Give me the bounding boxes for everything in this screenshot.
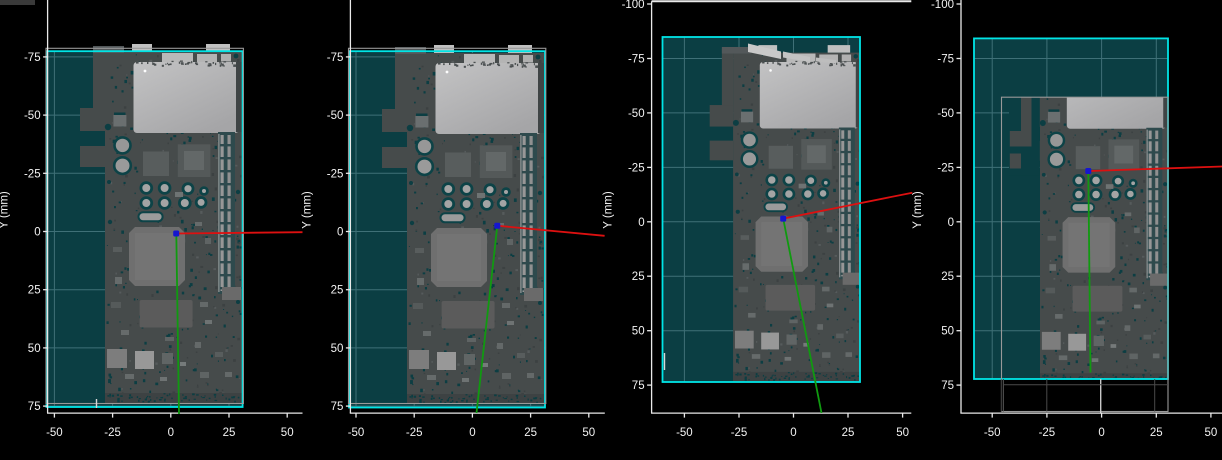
svg-text:Y (mm): Y (mm): [301, 191, 313, 229]
svg-text:0: 0: [638, 217, 644, 229]
svg-text:25: 25: [941, 271, 954, 283]
svg-text:25: 25: [1150, 427, 1163, 439]
svg-text:50: 50: [1205, 427, 1218, 439]
svg-text:-50: -50: [24, 110, 41, 122]
svg-text:-50: -50: [984, 427, 1001, 439]
svg-text:50: 50: [331, 343, 344, 355]
svg-text:-25: -25: [731, 427, 748, 439]
svg-text:-75: -75: [24, 52, 41, 64]
svg-text:25: 25: [524, 427, 537, 439]
svg-text:-75: -75: [628, 54, 645, 66]
svg-text:Y (mm): Y (mm): [912, 191, 924, 229]
svg-text:-75: -75: [937, 54, 954, 66]
svg-text:50: 50: [632, 326, 645, 338]
svg-text:-25: -25: [24, 168, 41, 180]
svg-text:75: 75: [941, 380, 954, 392]
svg-text:25: 25: [28, 285, 41, 297]
svg-text:-75: -75: [327, 52, 344, 64]
svg-text:0: 0: [337, 227, 343, 239]
svg-text:50: 50: [281, 427, 294, 439]
svg-text:-50: -50: [676, 427, 693, 439]
svg-text:25: 25: [331, 285, 344, 297]
svg-text:0: 0: [168, 427, 174, 439]
svg-text:50: 50: [896, 427, 909, 439]
svg-text:-50: -50: [46, 427, 63, 439]
svg-text:-100: -100: [622, 0, 645, 11]
svg-text:-50: -50: [628, 108, 645, 120]
svg-text:0: 0: [790, 427, 796, 439]
svg-text:50: 50: [28, 343, 41, 355]
svg-text:75: 75: [632, 380, 645, 392]
svg-text:75: 75: [28, 401, 41, 413]
svg-text:25: 25: [632, 271, 645, 283]
svg-text:25: 25: [223, 427, 236, 439]
svg-text:0: 0: [1098, 427, 1104, 439]
svg-text:-25: -25: [1039, 427, 1056, 439]
svg-text:-25: -25: [327, 168, 344, 180]
svg-text:25: 25: [842, 427, 855, 439]
svg-text:-100: -100: [931, 0, 954, 11]
svg-text:Y (mm): Y (mm): [0, 191, 11, 229]
svg-text:0: 0: [469, 427, 475, 439]
svg-text:-25: -25: [406, 427, 423, 439]
svg-text:50: 50: [941, 326, 954, 338]
svg-text:-25: -25: [937, 162, 954, 174]
svg-text:-50: -50: [348, 427, 365, 439]
svg-text:50: 50: [582, 427, 595, 439]
svg-text:-25: -25: [104, 427, 121, 439]
svg-text:75: 75: [331, 401, 344, 413]
svg-text:Y (mm): Y (mm): [603, 191, 615, 229]
svg-text:0: 0: [34, 227, 40, 239]
svg-text:-25: -25: [628, 162, 645, 174]
svg-text:-50: -50: [937, 108, 954, 120]
svg-text:-50: -50: [327, 110, 344, 122]
svg-text:0: 0: [948, 217, 954, 229]
